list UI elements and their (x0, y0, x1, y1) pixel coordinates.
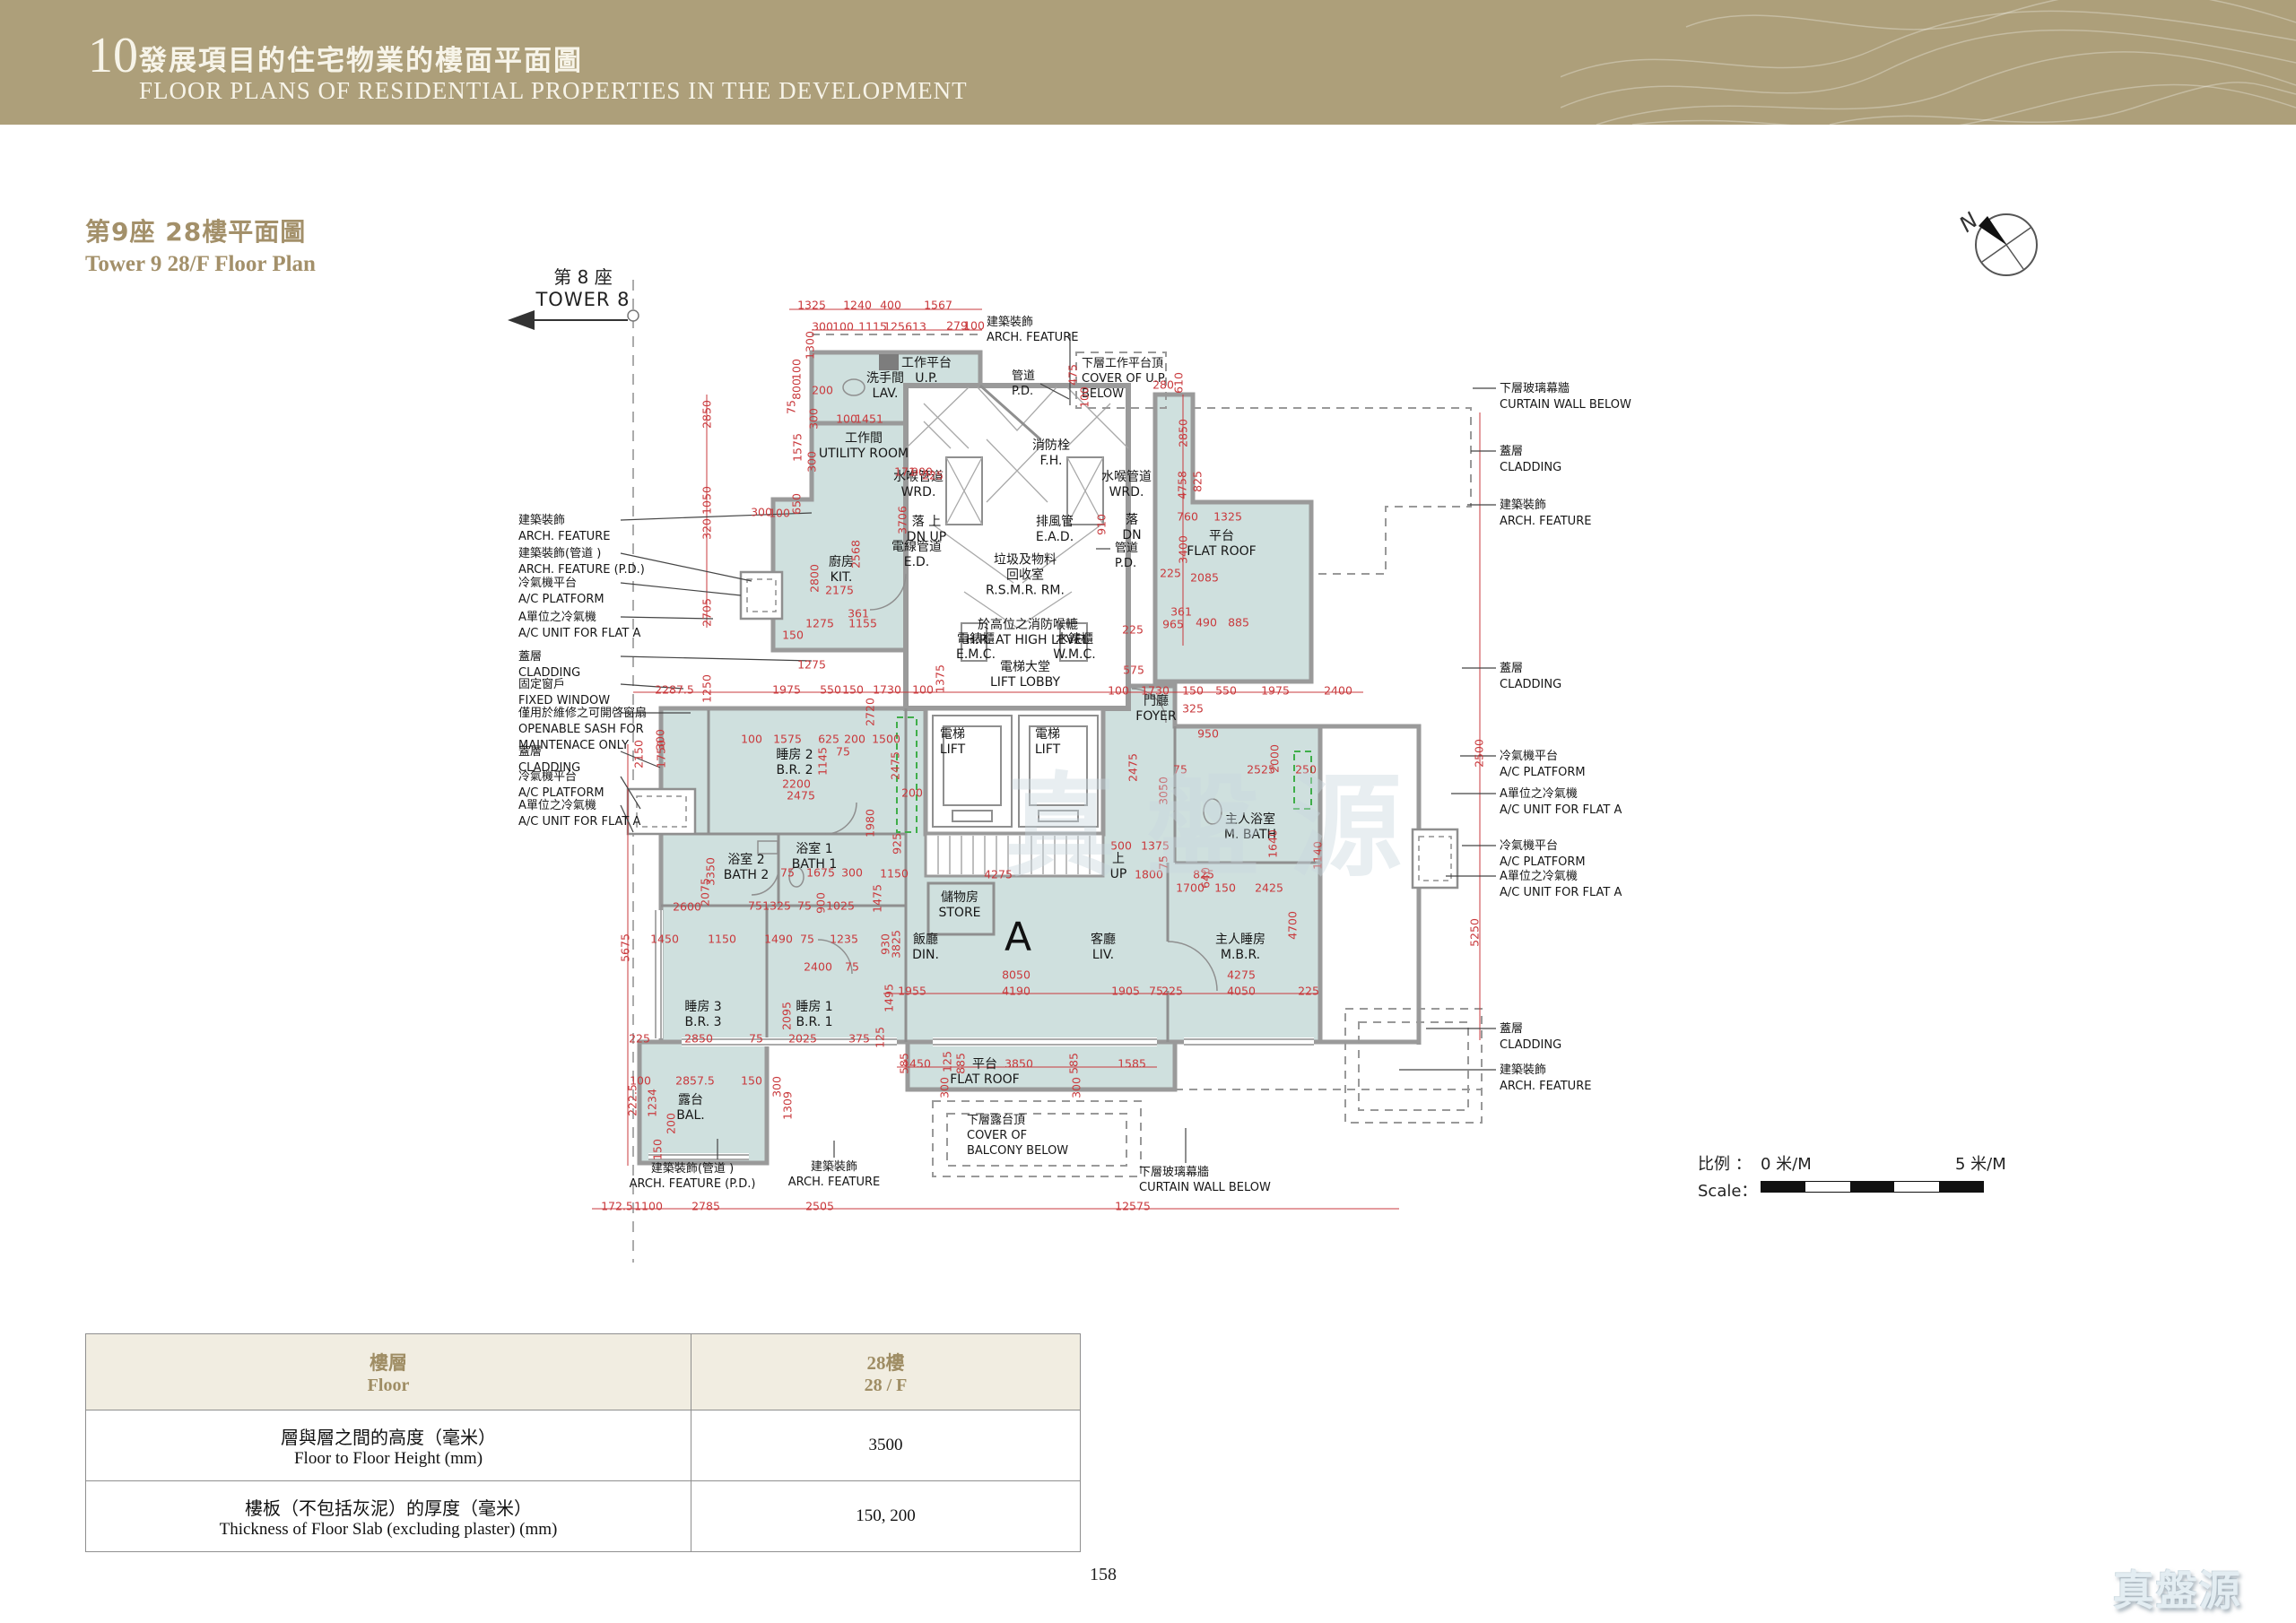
callout-left: A單位之冷氣機A/C UNIT FOR FLAT A (518, 798, 640, 830)
dimension-label: 222.5 (626, 1084, 639, 1116)
flat-label: A (1004, 915, 1031, 960)
dimension-label: 4275 (1227, 968, 1256, 982)
label-line: 冷氣機平台 (1500, 838, 1586, 855)
dimension-label: 1250 (700, 674, 714, 703)
room-label: 浴室 2BATH 2 (724, 853, 770, 883)
room-label: 平台FLAT ROOF (1187, 529, 1257, 560)
dimension-label: 75 (780, 866, 795, 880)
feature-note: 管道P.D. (1012, 369, 1035, 400)
dimension-label: 1235 (830, 933, 858, 946)
dimension-label: 12575 (1115, 1200, 1151, 1213)
dimension-label: 2785 (691, 1200, 720, 1213)
label-line: 下層玻璃幕牆 (1500, 381, 1631, 397)
page-number: 158 (1090, 1565, 1117, 1585)
slab-thickness-zh: 樓板（不包括灰泥）的厚度（毫米） (95, 1494, 682, 1520)
label-line: 下層工作平台頂 (1082, 357, 1167, 372)
label-line: E.D. (891, 555, 942, 570)
label-line: B.R. 3 (684, 1015, 721, 1030)
label-line: ARCH. FEATURE (518, 529, 610, 545)
scale-segment (1805, 1182, 1849, 1192)
scale-five-label: 5 米/M (1955, 1151, 2006, 1175)
dimension-label: 1275 (805, 617, 834, 630)
dimension-label: 100 (741, 733, 762, 746)
label-line: FLAT ROOF (950, 1072, 1020, 1088)
dimension-label: 885 (1228, 616, 1249, 629)
label-line: 睡房 1 (796, 1000, 832, 1015)
room-label: 垃圾及物料回收室R.S.M.R. RM. (986, 552, 1065, 598)
dimension-label: 4758 (1176, 471, 1189, 499)
dimension-label: 1730 (1141, 684, 1170, 698)
dimension-label: 150 (842, 683, 864, 697)
label-line: 下層玻璃幕牆 (1139, 1166, 1271, 1181)
dimension-label: 5250 (1468, 918, 1482, 947)
label-line: 工作平台 (901, 356, 952, 371)
dimension-label: 1375 (934, 664, 947, 693)
dimension-label: 1140 (1311, 841, 1325, 870)
dimension-label: 2175 (825, 584, 854, 597)
label-line: 下層露台頂 (967, 1114, 1068, 1129)
label-line: ARCH. FEATURE (1500, 1079, 1591, 1095)
label-line: CLADDING (1500, 1037, 1561, 1054)
room-label: 電梯大堂LIFT LOBBY (990, 660, 1060, 690)
callout-right: 蓋層CLADDING (1500, 1021, 1561, 1054)
label-line: 垃圾及物料 (986, 552, 1065, 568)
dimension-label: 8050 (1002, 968, 1031, 982)
label-line: CLADDING (1500, 677, 1561, 693)
dimension-label: 2850 (700, 400, 714, 429)
floor-height-label: 層與層之間的高度（毫米） Floor to Floor Height (mm) (86, 1410, 691, 1481)
label-line: 落 上 (907, 515, 946, 530)
label-line: 蓋層 (1500, 661, 1561, 677)
label-line: 建築裝飾 (518, 513, 610, 529)
label-line: A單位之冷氣機 (518, 798, 640, 814)
dimension-label: 5675 (619, 933, 632, 962)
table-row: 樓板（不包括灰泥）的厚度（毫米） Thickness of Floor Slab… (86, 1481, 1081, 1552)
dimension-label: 225 (1160, 567, 1181, 580)
label-line: 固定窗戶 (518, 677, 610, 693)
dimension-label: 2475 (1126, 753, 1140, 782)
dimension-label: 300 (1070, 1077, 1083, 1098)
label-line: CURTAIN WALL BELOW (1139, 1181, 1271, 1196)
dimension-label: 200 (665, 1113, 678, 1134)
label-line: A/C UNIT FOR FLAT A (1500, 885, 1622, 901)
label-line: 蓋層 (518, 744, 580, 760)
callout-left: 固定窗戶FIXED WINDOW (518, 677, 610, 709)
room-label: 電線管道E.D. (891, 540, 942, 570)
label-line: 電梯 (940, 727, 965, 742)
dimension-label: 300 (807, 408, 821, 430)
label-line: 蓋層 (1500, 444, 1561, 460)
dimension-label: 3050 (1157, 777, 1170, 805)
label-line: LAV. (866, 386, 904, 402)
dimension-label: 1025 (826, 899, 855, 913)
dimension-label: 1150 (708, 933, 736, 946)
label-line: ARCH. FEATURE (1500, 514, 1591, 530)
dimension-label: 2085 (1190, 571, 1219, 585)
dimension-label: 75 (748, 899, 762, 913)
dimension-label: 3706 (896, 506, 909, 534)
dimension-label: 1145 (816, 747, 830, 776)
floor-height-value: 3500 (691, 1410, 1081, 1481)
scale-segment (1939, 1182, 1983, 1192)
dimension-label: 2800 (808, 564, 822, 593)
dimension-label: 200 (901, 786, 923, 800)
dimension-label: 100 (912, 683, 934, 697)
floor-info-table: 樓層 Floor 28樓 28 / F 層與層之間的高度（毫米） Floor t… (85, 1333, 1081, 1552)
room-label: 電梯LIFT (1035, 727, 1060, 758)
dimension-label: 100 (1108, 684, 1129, 698)
dimension-label: 125 (883, 320, 905, 334)
label-line: 主人睡房 (1215, 933, 1265, 948)
dimension-label: 1309 (781, 1091, 795, 1120)
dimension-label: 2600 (673, 900, 701, 914)
table-header-floor: 樓層 Floor (86, 1334, 691, 1410)
dimension-label: 125 (941, 1051, 954, 1072)
dimension-label: 585 (1067, 1053, 1081, 1074)
dimension-label: 2568 (849, 540, 863, 568)
dimension-label: 325 (1182, 702, 1204, 716)
dimension-label: 1495 (883, 984, 896, 1012)
dimension-label: 3400 (1177, 535, 1190, 564)
label-line: 客廳 (1091, 933, 1116, 948)
feature-note: 下層玻璃幕牆CURTAIN WALL BELOW (1139, 1166, 1271, 1196)
scale-bar (1761, 1181, 1984, 1193)
label-line: 電梯大堂 (990, 660, 1060, 675)
dimension-label: 100 (1078, 386, 1091, 408)
dimension-label: 500 (1110, 839, 1132, 853)
dimension-label: 1050 (700, 486, 714, 515)
scale-label-en: Scale： (1698, 1178, 1757, 1202)
dimension-label: 150 (651, 1139, 665, 1160)
label-line: ARCH. FEATURE (987, 331, 1078, 346)
dimension-label: 610 (1172, 372, 1186, 394)
dimension-label: 965 (1162, 618, 1184, 631)
label-line: 僅用於維修之可開啓窗扇 (518, 706, 647, 722)
callout-right: A單位之冷氣機A/C UNIT FOR FLAT A (1500, 786, 1622, 819)
label-line: 飯廳 (912, 933, 939, 948)
label-line: M.B.R. (1215, 948, 1265, 963)
label-line: 平台 (1187, 529, 1257, 544)
label-line: UP (1110, 867, 1127, 882)
label-line: STORE (938, 906, 980, 921)
dimension-label: 900 (814, 892, 828, 914)
feature-note: 建築裝飾ARCH. FEATURE (788, 1160, 880, 1191)
callout-left: 冷氣機平台A/C PLATFORM (518, 576, 604, 608)
dimension-label: 125 (874, 1027, 887, 1048)
dimension-label: 1234 (646, 1089, 659, 1117)
dimension-label: 375 (848, 1032, 870, 1046)
label-line: R.S.M.R. RM. (986, 584, 1065, 599)
dimension-label: 550 (1215, 684, 1237, 698)
label-line: A/C PLATFORM (518, 592, 604, 608)
dimension-label: 1955 (898, 985, 926, 998)
dimension-label: 1275 (797, 658, 826, 672)
dimension-label: 1100 (634, 1200, 663, 1213)
label-line: 電梯 (1035, 727, 1060, 742)
label-line: BALCONY BELOW (967, 1144, 1068, 1159)
dimension-label: 300 (751, 506, 772, 519)
dimension-label: 1750 (655, 740, 668, 768)
dimension-label: 1475 (871, 884, 884, 913)
label-line: DIN. (912, 948, 939, 963)
label-line: LIV. (1091, 948, 1116, 963)
dimension-label: 550 (820, 683, 841, 697)
label-line: CLADDING (1500, 460, 1561, 476)
dimension-label: 2505 (805, 1200, 834, 1213)
dimension-label: 150 (782, 629, 804, 642)
dimension-label: 2000 (1268, 744, 1282, 773)
room-label: 電梯LIFT (940, 727, 965, 758)
callout-right: 冷氣機平台A/C PLATFORM (1500, 749, 1586, 781)
dimension-label: 361 (848, 607, 869, 621)
dimension-label: 100 (790, 359, 804, 380)
dimension-label: 4190 (1002, 985, 1031, 998)
dimension-label: 75 (749, 1032, 763, 1046)
floor-28-en: 28 / F (700, 1376, 1071, 1396)
label-line: 建築裝飾 (788, 1160, 880, 1176)
callout-left: 建築裝飾(管道 )ARCH. FEATURE (P.D.) (518, 546, 645, 578)
label-line: A/C PLATFORM (1500, 765, 1586, 781)
dimension-label: 1240 (843, 299, 872, 312)
label-line: 冷氣機平台 (518, 769, 604, 785)
dimension-label: 1450 (650, 933, 679, 946)
dimension-label: 75 (1173, 763, 1187, 777)
dimension-label: 1585 (1118, 1057, 1146, 1071)
dimension-label: 825 (1191, 471, 1205, 492)
dimension-label: 100 (963, 319, 985, 333)
dimension-label: 150 (1182, 684, 1204, 698)
dimension-label: 225 (1122, 623, 1144, 637)
dimension-label: 280 (1152, 378, 1174, 392)
callout-right: A單位之冷氣機A/C UNIT FOR FLAT A (1500, 869, 1622, 901)
callout-right: 下層玻璃幕牆CURTAIN WALL BELOW (1500, 381, 1631, 413)
room-label: 主人睡房M.B.R. (1215, 933, 1265, 963)
brochure-page: 10 發展項目的住宅物業的樓面平面圖 FLOOR PLANS OF RESIDE… (0, 0, 2296, 1623)
callout-right: 蓋層CLADDING (1500, 444, 1561, 476)
dimension-label: 4700 (1286, 911, 1300, 940)
dimension-label: 2400 (1324, 684, 1352, 698)
dimension-label: 2720 (864, 698, 877, 726)
corner-watermark: 真盤源 (2113, 1558, 2242, 1618)
dimension-label: 910 (1095, 514, 1109, 535)
callout-left: 建築裝飾ARCH. FEATURE (518, 513, 610, 545)
dimension-label: 75 (845, 960, 859, 974)
dimension-label: 1700 (1176, 881, 1205, 895)
dimension-label: 2287.5 (655, 683, 694, 697)
label-line: LIFT (1035, 742, 1060, 758)
dimension-label: 75 (1157, 855, 1170, 870)
room-label: 工作平台U.P. (901, 356, 952, 386)
dimension-label: 1640 (1266, 829, 1280, 858)
label-line: 建築裝飾(管道 ) (518, 546, 645, 562)
label-line: 主人浴室 (1224, 812, 1276, 828)
dimension-label: 2705 (700, 598, 714, 627)
callout-right: 建築裝飾ARCH. FEATURE (1500, 1063, 1591, 1095)
dimension-label: 3850 (1004, 1057, 1033, 1071)
room-label: 排風管E.A.D. (1036, 515, 1074, 545)
dimension-label: 490 (1196, 616, 1217, 629)
label-line: 水錶櫃 (1053, 632, 1095, 647)
feature-note: 下層露台頂COVER OFBALCONY BELOW (967, 1114, 1068, 1159)
dimension-label: 1980 (864, 809, 877, 838)
label-line: LIFT LOBBY (990, 675, 1060, 690)
dimension-label: 200 (812, 384, 833, 397)
dimension-label: 4275 (984, 868, 1013, 881)
dimension-label: 400 (880, 299, 901, 312)
label-line: A/C UNIT FOR FLAT A (518, 626, 640, 642)
label-line: 露台 (676, 1093, 704, 1108)
room-label: 露台BAL. (676, 1093, 704, 1124)
room-label: 消防栓F.H. (1032, 438, 1070, 469)
slab-thickness-en: Thickness of Floor Slab (excluding plast… (95, 1520, 682, 1540)
dimension-label: 800 (790, 378, 804, 400)
room-label: 水喉管道WRD. (1101, 470, 1152, 500)
dimension-label: 2500 (1473, 739, 1486, 768)
label-line: F.H. (1032, 454, 1070, 469)
dimension-label: 2150 (632, 740, 646, 768)
dimension-label: 361 (1170, 605, 1192, 619)
floor-height-zh: 層與層之間的高度（毫米） (95, 1423, 682, 1449)
label-line: 蓋層 (518, 649, 580, 665)
label-line: 浴室 1 (792, 842, 838, 857)
label-line: UTILITY ROOM (819, 447, 909, 462)
dimension-label: 1575 (791, 433, 804, 462)
dimension-label: 1575 (773, 733, 802, 746)
label-line: ARCH. FEATURE (788, 1176, 880, 1191)
label-line: 水喉管道 (1101, 470, 1152, 485)
label-line: 冷氣機平台 (518, 576, 604, 592)
label-line: 睡房 3 (684, 1000, 721, 1015)
label-line: 睡房 2 (776, 748, 813, 763)
dimension-label: 75 (785, 400, 798, 414)
label-line: 回收室 (986, 568, 1065, 583)
dimension-label: 1490 (764, 933, 793, 946)
label-line: 洗手間 (866, 371, 904, 386)
dimension-label: 2025 (788, 1032, 817, 1046)
label-line: COVER OF (967, 1129, 1068, 1144)
dimension-label: 2475 (889, 751, 902, 780)
dimension-label: 75 (797, 899, 812, 913)
dimension-label: 2850 (1177, 419, 1190, 447)
dimension-label: 1300 (804, 331, 817, 360)
scale-segment (1850, 1182, 1894, 1192)
dimension-label: 2475 (787, 789, 815, 803)
dimension-label: 75 (800, 933, 814, 946)
dimension-label: 1325 (762, 899, 791, 913)
label-line: 建築裝飾 (1500, 1063, 1591, 1079)
dimension-label: 300 (841, 866, 863, 880)
label-line: BAL. (676, 1108, 704, 1124)
dimension-label: 150 (741, 1074, 762, 1088)
label-line: 建築裝飾 (1500, 498, 1591, 514)
callout-right: 蓋層CLADDING (1500, 661, 1561, 693)
label-line: ARCH. FEATURE (P.D.) (630, 1177, 756, 1193)
label-line: LIFT (940, 742, 965, 758)
dimension-label: 575 (1123, 664, 1144, 677)
dimension-label: 1730 (873, 683, 901, 697)
dimension-label: 1905 (1111, 985, 1140, 998)
room-label: 客廳LIV. (1091, 933, 1116, 963)
label-line: 排風管 (1036, 515, 1074, 530)
feature-note: 建築裝飾ARCH. FEATURE (987, 316, 1078, 346)
label-line: OPENABLE SASH FOR (518, 722, 647, 738)
dimension-label: 1325 (797, 299, 826, 312)
dimension-label: 225 (629, 1032, 650, 1046)
label-line: A單位之冷氣機 (1500, 869, 1622, 885)
dimension-label: 1450 (902, 1057, 931, 1071)
room-label: 睡房 2B.R. 2 (776, 748, 813, 778)
room-label: 睡房 3B.R. 3 (684, 1000, 721, 1030)
label-line: 消防栓 (1032, 438, 1070, 454)
dimension-label: 1500 (872, 733, 900, 746)
dimension-label: 2850 (684, 1032, 713, 1046)
dimension-label: 1675 (806, 866, 835, 880)
floor-28-zh: 28樓 (700, 1349, 1071, 1376)
label-line: P.D. (1115, 557, 1138, 572)
label-line: 管道 (1012, 369, 1035, 385)
slab-thickness-value: 150, 200 (691, 1481, 1081, 1552)
dimension-label: 475 (1066, 364, 1080, 386)
dimension-label: 1375 (1141, 839, 1170, 853)
room-label: 儲物房STORE (938, 890, 980, 921)
dimension-label: 950 (1197, 727, 1219, 741)
dimension-label: 225 (1161, 985, 1183, 998)
room-label: 門廳FOYER (1135, 694, 1176, 725)
dimension-label: 200 (844, 733, 865, 746)
dimension-label: 1451 (855, 412, 883, 426)
room-label: 飯廳DIN. (912, 933, 939, 963)
label-line: 工作間 (819, 431, 909, 447)
dimension-label: 885 (954, 1053, 968, 1074)
dimension-label: 150 (1214, 881, 1236, 895)
room-label: 水錶櫃W.M.C. (1053, 632, 1095, 663)
dimension-label: 172.5 (601, 1200, 633, 1213)
dimension-label: 2857.5 (675, 1074, 715, 1088)
dimension-label: 613 (905, 320, 926, 334)
dimension-label: 225 (922, 469, 944, 482)
dimension-label: 225 (1298, 985, 1319, 998)
label-line: 落 (1122, 513, 1141, 528)
label-line: 建築裝飾 (987, 316, 1078, 331)
label-line: A/C UNIT FOR FLAT A (518, 814, 640, 830)
dimension-label: 4050 (1227, 985, 1256, 998)
label-line: E.A.D. (1036, 530, 1074, 545)
room-label: 洗手間LAV. (866, 371, 904, 402)
label-line: P.D. (1012, 385, 1035, 400)
floor-header-zh: 樓層 (95, 1349, 682, 1376)
scale-label-zh: 比例 ： (1698, 1151, 1752, 1175)
label-line: A單位之冷氣機 (518, 610, 640, 626)
dimension-label: 1975 (772, 683, 801, 697)
callout-left: A單位之冷氣機A/C UNIT FOR FLAT A (518, 610, 640, 642)
label-line: BATH 2 (724, 868, 770, 883)
label-line: A單位之冷氣機 (1500, 786, 1622, 803)
label-line: WRD. (1101, 485, 1152, 500)
table-header-28f: 28樓 28 / F (691, 1334, 1081, 1410)
dimension-label: 1325 (1213, 510, 1242, 524)
label-line: 冷氣機平台 (1500, 749, 1586, 765)
dimension-label: 300 (938, 1077, 952, 1098)
room-label: 工作間UTILITY ROOM (819, 431, 909, 462)
dimension-label: 320 (700, 518, 714, 540)
dimension-label: 300 (805, 451, 819, 473)
dimension-label: 75 (836, 745, 850, 759)
room-label: 睡房 1B.R. 1 (796, 1000, 832, 1030)
label-line: 於高位之消防喉轆 (966, 618, 1090, 633)
dimension-label: 2425 (1255, 881, 1283, 895)
callout-right: 建築裝飾ARCH. FEATURE (1500, 498, 1591, 530)
label-line: 上 (1110, 852, 1127, 867)
